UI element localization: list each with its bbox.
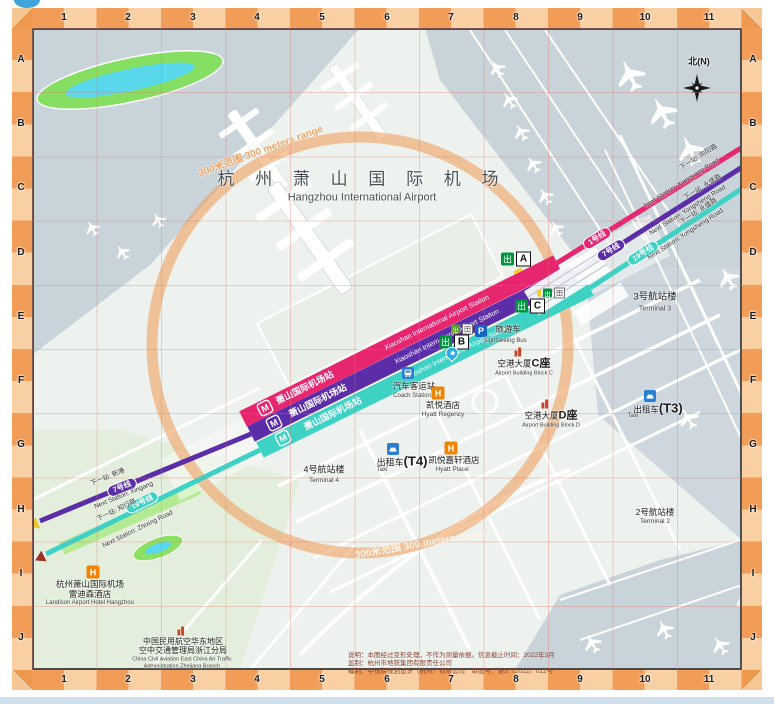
grid-column-label-bottom: 1 <box>61 675 67 685</box>
grid-row-label-left: A <box>17 55 24 65</box>
exit-c-mini-icons: 出 田 <box>537 288 565 299</box>
grid-column-label-top: 1 <box>61 13 67 23</box>
grid-row-label-right: G <box>749 440 757 450</box>
hyatt-place-en: Hyatt Place <box>435 467 468 474</box>
coach-station-zh: 汽车客运站 <box>393 382 436 391</box>
taxi-t4-suffix: (T4) <box>404 454 428 469</box>
map-title-en: Hangzhou International Airport <box>288 193 437 204</box>
exit-a: 出 A <box>501 252 531 267</box>
grid-row-label-right: D <box>749 248 756 258</box>
atc-zh1: 中国民用航空华东地区 <box>143 638 223 646</box>
grid-column-label-bottom: 2 <box>125 675 131 685</box>
grid-row-label-right: B <box>749 119 756 129</box>
map-note-line1: 说明：本图经过变形处理，不作为测量依据。信息截止时间：2022年3月 <box>348 653 555 660</box>
hotel-icon: H <box>445 442 458 455</box>
grid-row-label-left: C <box>17 183 24 193</box>
building-c-label: 空港大厦C座 <box>498 359 551 370</box>
grid-row-label-left: G <box>17 440 25 450</box>
bus-icon <box>402 367 414 379</box>
taxi-icon <box>644 390 656 402</box>
atc-en2: Administration Zhejiang Branch <box>144 664 220 670</box>
sightseeing-bus-zh: 旅游车 <box>495 325 521 334</box>
grid-row-label-right: I <box>752 569 755 579</box>
grid-column-label-bottom: 3 <box>190 675 196 685</box>
building-icon <box>175 625 188 638</box>
elevator-icon: 田 <box>462 324 473 335</box>
grid-column-label-top: 10 <box>639 13 650 23</box>
terminal3-en: Terminal 3 <box>639 306 671 313</box>
grid-column-label-top: 2 <box>125 13 131 23</box>
exit-c: 出 C <box>515 299 545 314</box>
building-d-en: Airport Building Block D <box>522 423 580 429</box>
grid-row-label-right: E <box>750 312 757 322</box>
grid-row-label-left: E <box>18 312 25 322</box>
grid-row-label-left: B <box>17 119 24 129</box>
grid-column-label-top: 7 <box>448 13 454 23</box>
hyatt-place-zh: 凯悦嘉轩酒店 <box>428 456 479 465</box>
grid-column-label-bottom: 9 <box>577 675 583 685</box>
exit-icon: 出 <box>501 253 514 266</box>
exit-icon: 出 <box>515 300 528 313</box>
coach-station-en: Coach Station <box>393 393 431 399</box>
line7-arrow <box>744 154 759 169</box>
landison-zh2: 雷迪森酒店 <box>69 590 112 599</box>
hyatt-regency-en: Hyatt Regency <box>422 412 465 419</box>
building-c-suffix: C座 <box>532 358 551 370</box>
grid-row-label-left: F <box>18 376 24 386</box>
terminal4-zh: 4号航站楼 <box>303 466 344 475</box>
grid-column-label-bottom: 6 <box>384 675 390 685</box>
hotel-icon: H <box>432 387 445 400</box>
grid-row-label-left: I <box>20 569 23 579</box>
grid-row-label-left: H <box>17 505 24 515</box>
exit-c-letter: C <box>530 299 545 314</box>
elevator-icon: 田 <box>554 288 565 299</box>
map-note-line2: 监制：杭州市地铁集团有限责任公司 <box>348 661 452 668</box>
grid-column-label-top: 11 <box>704 13 715 23</box>
grid-column-label-bottom: 5 <box>319 675 325 685</box>
exit-icon: 出 <box>543 289 552 298</box>
grid-column-label-bottom: 8 <box>513 675 519 685</box>
grid-column-label-bottom: 7 <box>448 675 454 685</box>
airport-metro-map: M M M 杭 州 萧 山 国 际 机 场 Hangz <box>0 0 774 704</box>
building-d-label: 空港大厦D座 <box>525 411 578 422</box>
hyatt-regency-zh: 凯悦酒店 <box>426 401 460 410</box>
building-d-suffix: D座 <box>559 410 578 422</box>
grid-column-label-top: 8 <box>513 13 519 23</box>
map-title-zh: 杭 州 萧 山 国 际 机 场 <box>217 171 506 188</box>
grid-row-label-right: F <box>750 376 756 386</box>
taxi-t4-zh: 出租车 <box>377 458 404 468</box>
building-c-en: Airport Building Block C <box>495 371 553 377</box>
terminal4-en: Terminal 4 <box>309 478 339 485</box>
grid-row-label-right: A <box>749 55 756 65</box>
grid-row-label-left: J <box>18 633 24 643</box>
grid-row-label-right: C <box>749 183 756 193</box>
taxi-t3-label: 出租车(T3) <box>633 402 682 415</box>
grid-column-label-top: 6 <box>384 13 390 23</box>
exit-b-mini-icons: 出 田 <box>451 324 473 335</box>
atc-zh2: 空中交通管理局浙江分局 <box>139 647 227 655</box>
taxi-t4-label: 出租车(T4) <box>377 455 428 468</box>
grid-row-label-left: D <box>17 248 24 258</box>
building-d-zh: 空港大厦 <box>525 411 559 421</box>
terminal3-zh: 3号航站楼 <box>633 292 676 302</box>
grid-column-label-top: 9 <box>577 13 583 23</box>
building-c-zh: 空港大厦 <box>498 359 532 369</box>
grid-column-label-bottom: 4 <box>254 675 260 685</box>
grid-column-label-bottom: 11 <box>704 675 715 685</box>
north-label: 北(N) <box>688 58 710 67</box>
grid-column-label-top: 4 <box>254 13 260 23</box>
taxi-t3-en: Taxi <box>628 413 639 419</box>
terminal2-zh: 2号航站楼 <box>636 508 675 517</box>
exit-icon: 出 <box>451 325 460 334</box>
stairs-icon <box>537 290 541 297</box>
exit-a-letter: A <box>516 252 531 267</box>
grid-row-label-right: H <box>749 505 756 515</box>
line1-arrow <box>740 136 755 151</box>
sightseeing-bus-en: Sightseeing Bus <box>483 338 526 344</box>
landison-en: Landison Airport Hotel Hangzhou <box>46 600 134 606</box>
taxi-t3-suffix: (T3) <box>659 401 683 416</box>
terminal2-en: Terminal 2 <box>640 519 670 526</box>
grid-row-label-right: J <box>750 633 756 643</box>
landison-zh1: 杭州萧山国际机场 <box>56 580 124 589</box>
grid-column-label-top: 3 <box>190 13 196 23</box>
building-icon <box>512 346 525 359</box>
exit-b-letter: B <box>454 335 469 350</box>
taxi-icon <box>387 443 399 455</box>
taxi-t4-en: Taxi <box>377 467 388 473</box>
map-artwork: M M M <box>0 0 774 704</box>
building-icon <box>539 398 552 411</box>
atc-en1: China Civil Aviation East China Air Traf… <box>132 657 232 663</box>
grid-column-label-top: 5 <box>319 13 325 23</box>
parking-icon: P <box>475 325 487 337</box>
grid-column-label-bottom: 10 <box>639 675 650 685</box>
hotel-icon: H <box>87 566 100 579</box>
